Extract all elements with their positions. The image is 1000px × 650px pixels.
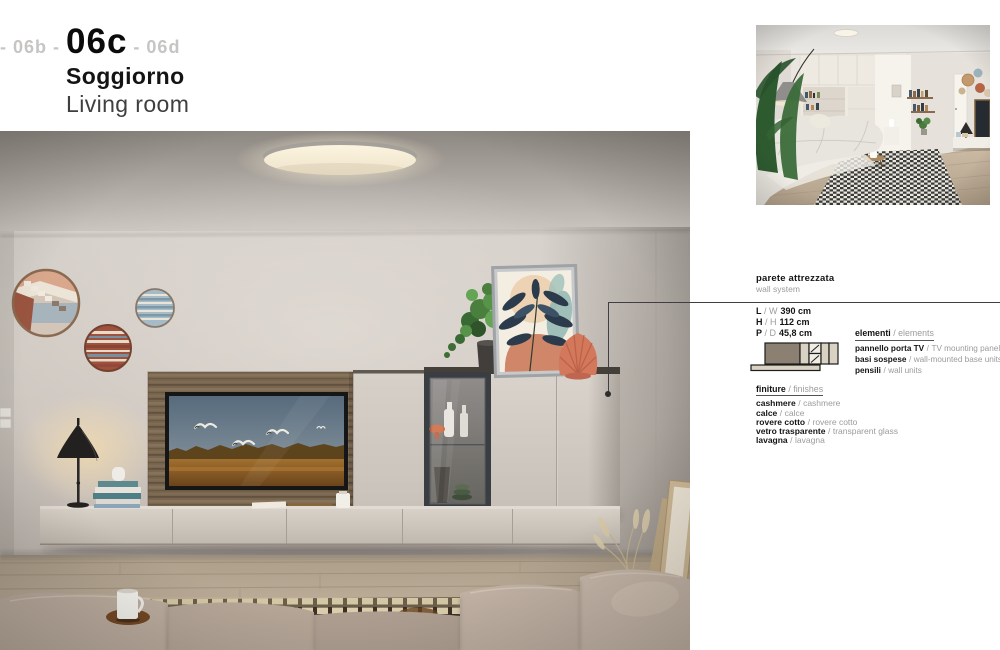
product-name-block: parete attrezzata wall system (756, 273, 834, 294)
elements-heading: elementi/elements (855, 328, 934, 341)
page-title-english: Living room (66, 91, 189, 118)
photo-vignette (0, 131, 690, 650)
element-item: pannello porta TV/TV mounting panel (855, 343, 1000, 354)
dimension-depth: P/D45,8 cm (756, 328, 812, 339)
section-nav: - 06b - 06c - 06d (0, 22, 189, 62)
finishes-block: finiture/finishes cashmere/cashmere calc… (756, 385, 898, 446)
nav-prev-section: - 06b - (0, 37, 60, 58)
product-name-english: wall system (756, 284, 834, 294)
product-name-italian: parete attrezzata (756, 273, 834, 284)
dimension-height: H/H112 cm (756, 317, 812, 328)
page-title-italian: Soggiorno (66, 63, 189, 90)
finish-item: lavagna/lavagna (756, 436, 898, 445)
element-item: basi sospese/wall-mounted base units (855, 354, 1000, 365)
callout-line-horizontal (608, 302, 1000, 303)
callout-line-vertical (608, 302, 609, 394)
callout-dot (605, 391, 611, 397)
elements-block: elementi/elements pannello porta TV/TV m… (855, 328, 1000, 376)
dimension-width: L/W390 cm (756, 306, 812, 317)
living-room-photo (0, 131, 690, 650)
page-header: - 06b - 06c - 06d Soggiorno Living room (0, 22, 189, 118)
dimensions-block: L/W390 cm H/H112 cm P/D45,8 cm (756, 306, 812, 339)
element-item: pensili/wall units (855, 365, 1000, 376)
finishes-heading: finiture/finishes (756, 385, 823, 396)
wall-system-diagram (750, 341, 840, 373)
finish-item: cashmere/cashmere (756, 399, 898, 408)
nav-next-section: - 06d (133, 37, 180, 58)
room-overview-thumbnail (756, 25, 990, 205)
catalog-page: - 06b - 06c - 06d Soggiorno Living room (0, 0, 1000, 650)
nav-current-section: 06c (66, 22, 127, 62)
